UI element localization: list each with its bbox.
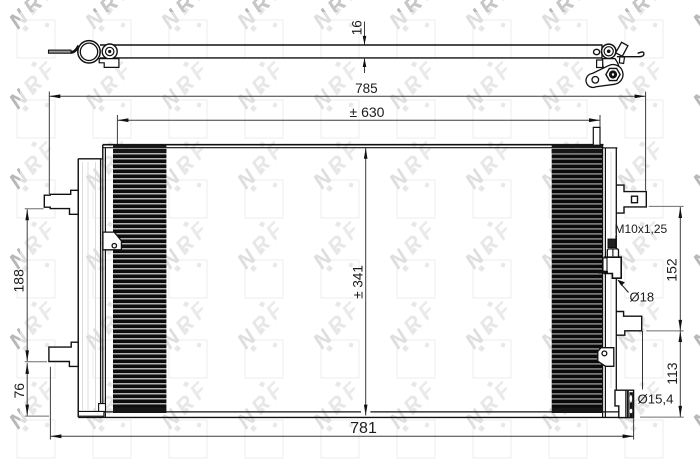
svg-text:16: 16 <box>350 20 365 35</box>
svg-text:785: 785 <box>355 81 378 96</box>
svg-text:Ø15,4: Ø15,4 <box>638 392 674 407</box>
svg-text:M10x1,25: M10x1,25 <box>615 222 668 236</box>
svg-text:± 341: ± 341 <box>350 265 365 299</box>
svg-text:76: 76 <box>11 383 27 399</box>
svg-text:188: 188 <box>11 269 27 293</box>
svg-text:152: 152 <box>664 258 680 282</box>
svg-text:781: 781 <box>350 420 377 437</box>
svg-text:Ø18: Ø18 <box>630 289 655 304</box>
svg-text:± 630: ± 630 <box>350 104 385 120</box>
svg-text:113: 113 <box>664 362 680 385</box>
